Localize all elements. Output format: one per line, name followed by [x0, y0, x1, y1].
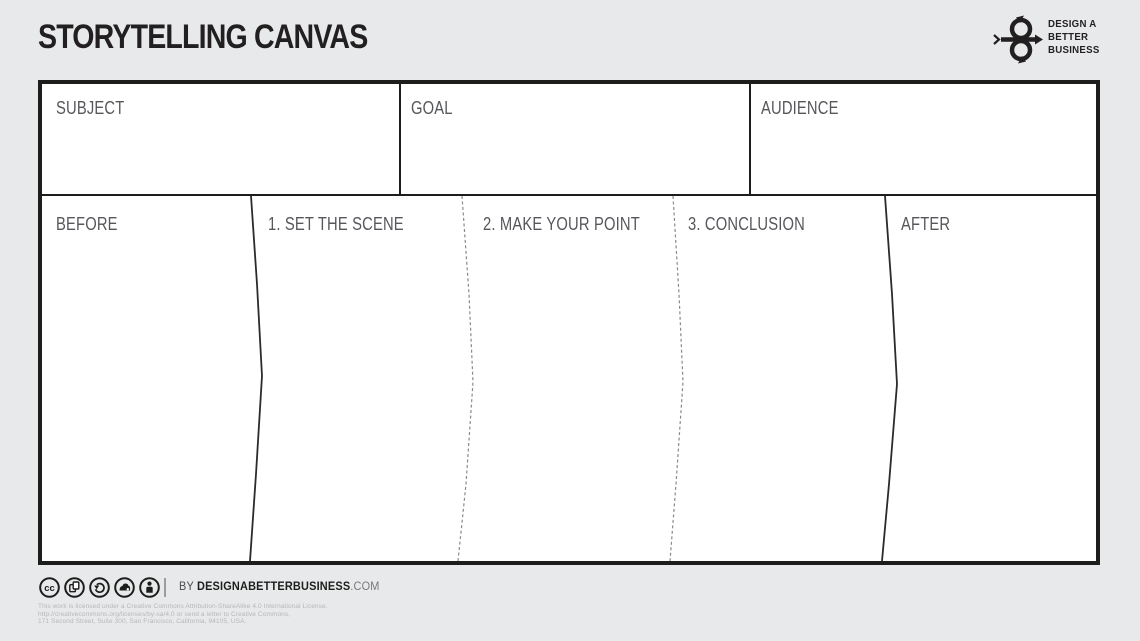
attribution-icon [140, 578, 159, 597]
section-conclusion-label: 3. CONCLUSION [688, 214, 805, 235]
section-before-label: BEFORE [56, 214, 118, 235]
divider-before-scene [250, 196, 262, 561]
brand-logo-line-1: DESIGN A [1048, 18, 1100, 31]
story-section-dividers [42, 84, 1096, 561]
license-line-1: This work is licensed under a Creative C… [38, 603, 328, 611]
divider-conclusion-after [882, 196, 897, 561]
divider-point-conclusion [670, 196, 683, 561]
byline: BY DESIGNABETTERBUSINESS.COM [179, 581, 380, 593]
license-line-2: http://creativecommons.org/licenses/by-s… [38, 611, 328, 619]
cc-icon: cc [40, 578, 59, 597]
divider-scene-point [458, 196, 473, 561]
brand-logo: DESIGN A BETTER BUSINESS [992, 12, 1122, 68]
infinity-arrow-icon [992, 14, 1044, 66]
license-text: This work is licensed under a Creative C… [38, 603, 328, 626]
remix-icon [115, 578, 134, 597]
byline-site: DESIGNABETTERBUSINESS [197, 581, 350, 593]
brand-logo-line-2: BETTER [1048, 31, 1100, 44]
brand-logo-text: DESIGN A BETTER BUSINESS [1048, 18, 1100, 57]
brand-logo-line-3: BUSINESS [1048, 44, 1100, 57]
byline-tld: .COM [350, 581, 379, 593]
section-set-the-scene-label: 1. SET THE SCENE [268, 214, 404, 235]
creative-commons-icons: cc [38, 576, 164, 599]
license-line-3: 171 Second Street, Suite 300, San Franci… [38, 618, 328, 626]
section-after-label: AFTER [901, 214, 950, 235]
page-title: STORYTELLING CANVAS [38, 18, 367, 57]
share-alike-icon [90, 578, 109, 597]
svg-text:cc: cc [44, 583, 55, 594]
section-make-your-point-label: 2. MAKE YOUR POINT [483, 214, 640, 235]
copy-icon [65, 578, 84, 597]
byline-prefix: BY [179, 581, 197, 593]
storytelling-canvas: SUBJECT GOAL AUDIENCE BEFORE 1. SET THE … [38, 80, 1100, 565]
footer-divider [164, 578, 166, 597]
